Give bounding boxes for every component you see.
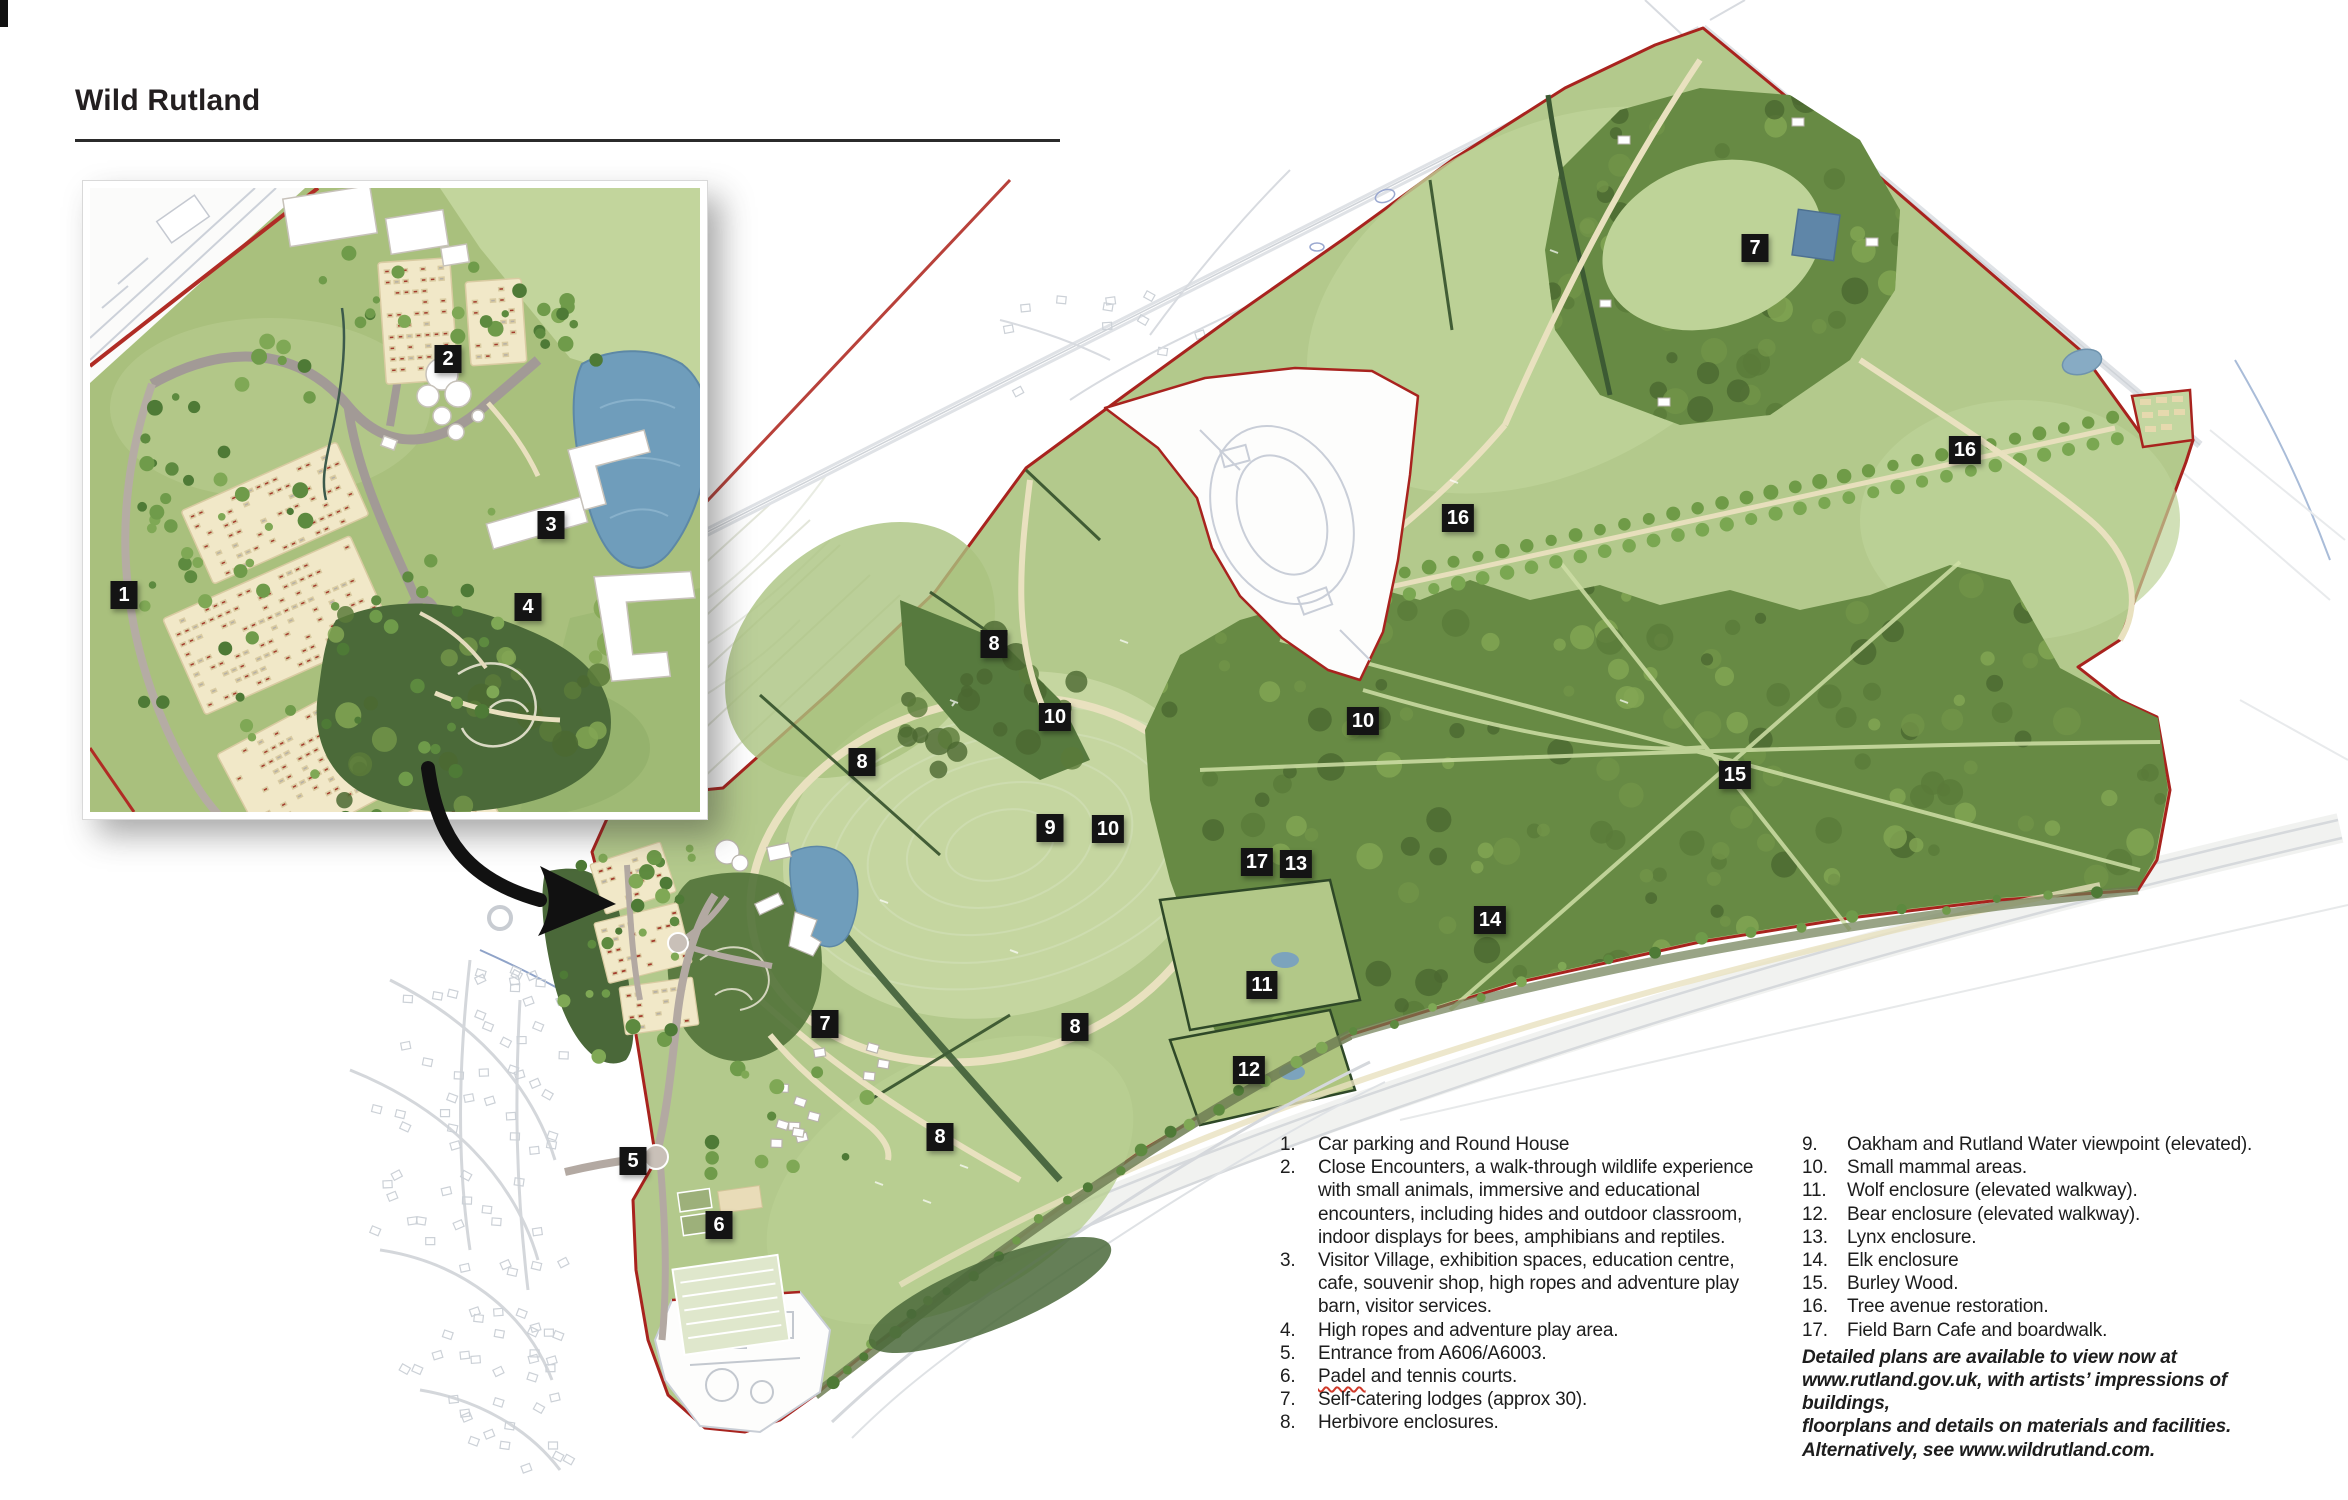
legend-item-text: Elk enclosure (1847, 1249, 2285, 1272)
map-marker-15: 15 (1719, 761, 1751, 789)
legend-item-text: Visitor Village, exhibition spaces, educ… (1318, 1249, 1770, 1319)
legend-item-9: 9.Oakham and Rutland Water viewpoint (el… (1802, 1133, 2292, 1156)
legend-item-number: 16. (1802, 1295, 1847, 1318)
legend-item-text: Entrance from A606/A6003. (1318, 1342, 1770, 1365)
legend-item-number: 14. (1802, 1249, 1847, 1272)
legend-item-6: 6.Padel and tennis courts. (1280, 1365, 1770, 1388)
legend-note-line: Alternatively, see www.wildrutland.com. (1802, 1439, 2292, 1462)
legend-item-15: 15.Burley Wood. (1802, 1272, 2292, 1295)
legend-item-number: 6. (1280, 1365, 1318, 1388)
legend-item-7: 7.Self-catering lodges (approx 30). (1280, 1388, 1770, 1411)
map-marker-6: 6 (706, 1211, 733, 1239)
map-marker-16: 16 (1949, 436, 1981, 464)
map-marker-10: 10 (1347, 707, 1379, 735)
legend-item-text: Wolf enclosure (elevated walkway). (1847, 1179, 2285, 1202)
legend-item-text: Oakham and Rutland Water viewpoint (elev… (1847, 1133, 2285, 1156)
legend-item-number: 3. (1280, 1249, 1318, 1319)
misspelled-word: Padel (1318, 1366, 1366, 1387)
map-marker-13: 13 (1280, 850, 1312, 878)
legend-item-number: 8. (1280, 1411, 1318, 1434)
legend-column-2: 9.Oakham and Rutland Water viewpoint (el… (1802, 1133, 2292, 1462)
legend-item-3: 3.Visitor Village, exhibition spaces, ed… (1280, 1249, 1770, 1319)
legend-item-number: 1. (1280, 1133, 1318, 1156)
legend-item-13: 13.Lynx enclosure. (1802, 1226, 2292, 1249)
map-marker-8: 8 (1062, 1013, 1089, 1041)
legend-item-text: Padel and tennis courts. (1318, 1365, 1770, 1388)
inset-illustration (90, 188, 700, 812)
map-marker-8: 8 (927, 1123, 954, 1151)
legend-item-number: 17. (1802, 1319, 1847, 1342)
legend-note: Detailed plans are available to view now… (1802, 1346, 2292, 1462)
map-legend: 1.Car parking and Round House2.Close Enc… (1280, 1133, 2292, 1462)
map-marker-1: 1 (111, 581, 138, 609)
map-marker-12: 12 (1233, 1056, 1265, 1084)
inset-detail-map (83, 181, 707, 819)
map-marker-7: 7 (812, 1010, 839, 1038)
map-marker-5: 5 (620, 1147, 647, 1175)
legend-item-number: 12. (1802, 1203, 1847, 1226)
legend-item-2: 2.Close Encounters, a walk-through wildl… (1280, 1156, 1770, 1249)
map-marker-16: 16 (1442, 504, 1474, 532)
legend-column-1: 1.Car parking and Round House2.Close Enc… (1280, 1133, 1770, 1462)
map-marker-7: 7 (1742, 234, 1769, 262)
legend-item-number: 13. (1802, 1226, 1847, 1249)
legend-item-text: Small mammal areas. (1847, 1156, 2285, 1179)
legend-item-text: Herbivore enclosures. (1318, 1411, 1770, 1434)
legend-note-line: Detailed plans are available to view now… (1802, 1346, 2292, 1369)
map-marker-10: 10 (1039, 703, 1071, 731)
legend-item-text: Bear enclosure (elevated walkway). (1847, 1203, 2285, 1226)
legend-item-number: 4. (1280, 1319, 1318, 1342)
legend-item-16: 16.Tree avenue restoration. (1802, 1295, 2292, 1318)
legend-item-11: 11.Wolf enclosure (elevated walkway). (1802, 1179, 2292, 1202)
legend-item-number: 7. (1280, 1388, 1318, 1411)
map-marker-4: 4 (515, 593, 542, 621)
map-marker-17: 17 (1241, 848, 1273, 876)
legend-item-number: 5. (1280, 1342, 1318, 1365)
legend-item-number: 15. (1802, 1272, 1847, 1295)
map-marker-10: 10 (1092, 815, 1124, 843)
legend-item-number: 2. (1280, 1156, 1318, 1249)
legend-item-8: 8.Herbivore enclosures. (1280, 1411, 1770, 1434)
legend-item-1: 1.Car parking and Round House (1280, 1133, 1770, 1156)
legend-item-12: 12.Bear enclosure (elevated walkway). (1802, 1203, 2292, 1226)
legend-item-text: Close Encounters, a walk-through wildlif… (1318, 1156, 1770, 1249)
legend-item-number: 10. (1802, 1156, 1847, 1179)
legend-item-5: 5.Entrance from A606/A6003. (1280, 1342, 1770, 1365)
wild-rutland-masterplan-page: { "title": "Wild Rutland", "legend": { "… (0, 0, 2348, 1500)
legend-item-text: Field Barn Cafe and boardwalk. (1847, 1319, 2285, 1342)
legend-item-text: Car parking and Round House (1318, 1133, 1770, 1156)
legend-item-number: 11. (1802, 1179, 1847, 1202)
legend-note-line: www.rutland.gov.uk, with artists’ impres… (1802, 1369, 2292, 1415)
legend-item-4: 4.High ropes and adventure play area. (1280, 1319, 1770, 1342)
legend-item-text: Lynx enclosure. (1847, 1226, 2285, 1249)
map-marker-8: 8 (849, 748, 876, 776)
legend-item-text: High ropes and adventure play area. (1318, 1319, 1770, 1342)
legend-item-10: 10.Small mammal areas. (1802, 1156, 2292, 1179)
legend-item-14: 14.Elk enclosure (1802, 1249, 2292, 1272)
map-marker-14: 14 (1474, 906, 1506, 934)
legend-item-17: 17.Field Barn Cafe and boardwalk. (1802, 1319, 2292, 1342)
map-marker-8: 8 (981, 630, 1008, 658)
legend-item-number: 9. (1802, 1133, 1847, 1156)
map-marker-3: 3 (538, 511, 565, 539)
legend-item-text: Self-catering lodges (approx 30). (1318, 1388, 1770, 1411)
legend-item-text: Burley Wood. (1847, 1272, 2285, 1295)
map-marker-9: 9 (1037, 814, 1064, 842)
map-marker-11: 11 (1246, 971, 1277, 999)
legend-note-line: floorplans and details on materials and … (1802, 1415, 2292, 1438)
map-marker-2: 2 (435, 345, 462, 373)
legend-item-text: Tree avenue restoration. (1847, 1295, 2285, 1318)
